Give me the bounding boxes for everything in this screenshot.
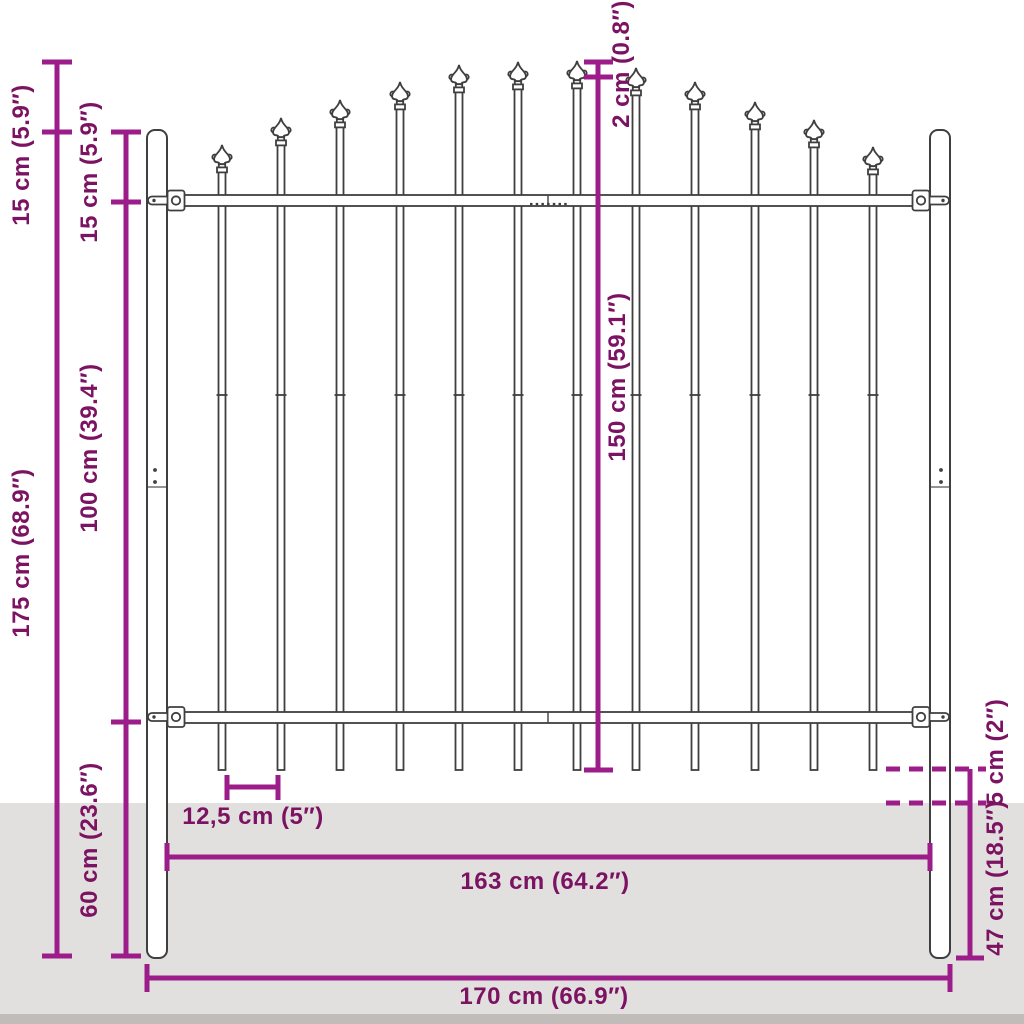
fence-post-right <box>930 130 950 958</box>
dim-label-bar-spacing: 12,5 cm (5″) <box>182 803 324 831</box>
fence-post-left <box>147 130 167 958</box>
dim-label-spike-step: 2 cm (0.8″) <box>608 0 636 128</box>
bracket-bolt <box>172 713 180 721</box>
spear-finial-icon <box>747 102 763 121</box>
pin-dot <box>152 199 155 202</box>
post-bolt-hole <box>939 468 943 472</box>
ground-edge <box>0 1014 1024 1024</box>
pin-dot <box>941 199 944 202</box>
fence-picket <box>567 61 586 770</box>
picket-bar <box>278 145 285 770</box>
dim-label-total-width: 170 cm (66.9″) <box>459 983 628 1011</box>
spear-finial-icon <box>569 61 585 80</box>
dim-label-ground-clearance: 5 cm (2″) <box>982 699 1010 806</box>
dim-label-below-rail: 60 cm (23.6″) <box>76 762 104 917</box>
dim-label-panel-width: 163 cm (64.2″) <box>460 868 629 896</box>
dim-label-rail-spacing: 100 cm (39.4″) <box>76 363 104 532</box>
picket-bar <box>337 127 344 770</box>
dim-label-ground-depth: 47 cm (18.5″) <box>982 800 1010 955</box>
fence-picket <box>508 62 527 770</box>
fence-picket <box>685 82 704 770</box>
spear-finial-icon <box>510 62 526 81</box>
picket-bar <box>515 89 522 770</box>
fence-picket <box>212 145 231 770</box>
dim-label-spike-height: 15 cm (5.9″) <box>8 84 36 226</box>
dim-label-post-top-to-rail: 15 cm (5.9″) <box>76 101 104 243</box>
post-bolt-hole <box>153 480 157 484</box>
spear-finial-icon <box>273 118 289 137</box>
fence-picket <box>804 120 823 770</box>
fence-picket <box>863 147 882 770</box>
post-bolt-hole <box>939 480 943 484</box>
fence-picket <box>271 118 290 770</box>
spear-finial-icon <box>687 82 703 101</box>
pin-dot <box>941 715 944 718</box>
dim-label-post-height: 175 cm (68.9″) <box>8 468 36 637</box>
fence-picket <box>390 82 409 770</box>
picket-bar <box>811 147 818 770</box>
bracket-bolt <box>917 196 925 204</box>
spear-finial-icon <box>392 82 408 101</box>
bracket-bolt <box>917 713 925 721</box>
picket-bar <box>574 88 581 770</box>
picket-group <box>212 61 882 770</box>
spear-finial-icon <box>806 120 822 139</box>
picket-bar <box>870 174 877 770</box>
post-bolt-hole <box>153 468 157 472</box>
spear-finial-icon <box>214 145 230 164</box>
spear-finial-icon <box>865 147 881 166</box>
picket-bar <box>397 109 404 770</box>
spear-finial-icon <box>451 65 467 84</box>
picket-bar <box>456 92 463 770</box>
picket-bar <box>752 129 759 770</box>
pin-dot <box>152 715 155 718</box>
bracket-bolt <box>172 196 180 204</box>
dimension-diagram: 15 cm (5.9″) 175 cm (68.9″) 15 cm (5.9″)… <box>0 0 1024 1024</box>
spear-finial-icon <box>332 100 348 119</box>
picket-bar <box>692 109 699 770</box>
picket-bar <box>219 172 226 770</box>
dim-label-panel-height: 150 cm (59.1″) <box>604 292 632 461</box>
fence-picket <box>449 65 468 770</box>
dim-line-bar-spacing <box>227 775 278 800</box>
